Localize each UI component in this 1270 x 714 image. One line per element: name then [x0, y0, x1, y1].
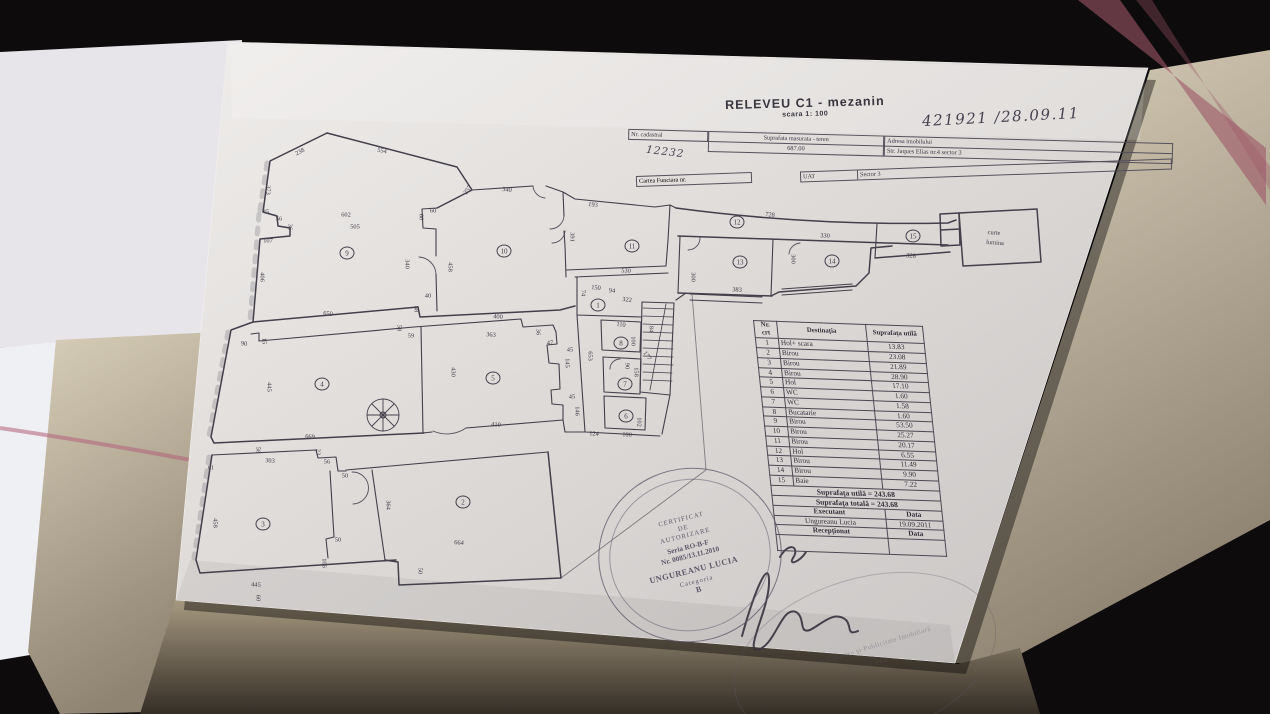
dimension-label: 50 — [417, 568, 424, 574]
dimension-label: 94 — [608, 287, 615, 295]
dimension-label: 653 — [587, 351, 594, 361]
dimension-label: 60 — [430, 208, 436, 215]
dimension-label: 300 — [690, 272, 697, 282]
dimension-label: 59 — [408, 333, 414, 340]
dimension-label: 60 — [255, 595, 262, 601]
room-number-circle: 7 — [618, 378, 633, 391]
dimension-label: 74 — [580, 290, 587, 296]
dimension-label: 45 — [569, 394, 575, 401]
room-number-circle: 10 — [497, 245, 512, 258]
dimension-label: 340 — [404, 259, 411, 269]
room-number-circle: 13 — [733, 256, 748, 269]
dimension-label: 373 — [265, 185, 272, 195]
dimension-label: 90 — [241, 340, 248, 347]
uat-cell: UAT — [800, 169, 858, 182]
dimension-label: 445 — [266, 382, 273, 392]
room-number-circle: 5 — [486, 372, 501, 385]
col-nr-crt: Nr. crt — [754, 321, 778, 339]
dimension-label: 15 — [261, 338, 268, 344]
dimension-label: 102 — [636, 417, 643, 427]
dimension-label: 364 — [385, 500, 392, 510]
room-number-circle: 2 — [456, 496, 471, 509]
dimension-label: 363 — [486, 331, 496, 339]
dimension-label: 23 — [315, 449, 322, 455]
dimension-label: 158 — [633, 367, 640, 377]
dimension-label: 60 — [418, 214, 425, 220]
dimension-label: 84 — [648, 326, 655, 332]
dimension-label: 146 — [574, 406, 581, 416]
dimension-label: 391 — [569, 232, 576, 242]
dimension-label: 58 — [255, 447, 262, 453]
dimension-label: 400 — [493, 313, 503, 321]
room-number-circle: 12 — [730, 216, 745, 229]
rooms-table: Nr. crt Destinaţia Suprafaţa utilă 1Hol+… — [753, 320, 947, 557]
dimension-label: 56 — [324, 459, 330, 466]
dimension-label: 106 — [321, 558, 328, 568]
nr-cadastral-label: Nr. cadastral — [629, 130, 707, 141]
dimension-label: 107 — [263, 238, 273, 245]
dimension-label: 193 — [588, 201, 598, 209]
dimension-label: 61 — [208, 465, 214, 472]
room-number-circle: 6 — [619, 410, 634, 423]
room-number-circle: 11 — [625, 240, 640, 253]
dimension-label: 406 — [259, 272, 266, 282]
dimension-label: 530 — [621, 267, 631, 275]
dimension-label: 36 — [535, 329, 542, 335]
dimension-label: 145 — [564, 358, 571, 368]
photo-of-floorplan-document: 2385543734556361076025054063406060257458… — [0, 0, 1270, 714]
dimension-label: 36 — [287, 224, 294, 230]
dimension-label: 330 — [820, 232, 830, 240]
dimension-label: 410 — [491, 421, 501, 429]
uat-label: UAT — [801, 171, 857, 182]
nr-cadastral-cell: Nr. cadastral — [628, 129, 708, 142]
oval-stamp-office: Oficiul de Cadastru şi Publicitate Imobi… — [780, 622, 945, 680]
dimension-label: 430 — [450, 367, 457, 377]
dimension-label: 100 — [622, 431, 632, 439]
dimension-label: 300 — [790, 254, 797, 264]
dimension-label: 664 — [454, 539, 464, 547]
room-number-circle: 8 — [614, 337, 629, 350]
dimension-label: 150 — [591, 284, 601, 292]
col-suprafata: Suprafaţa utilă — [865, 324, 924, 343]
room-number-circle: 9 — [340, 247, 355, 260]
dimension-label: 458 — [447, 262, 454, 272]
dimension-label: 100 — [630, 336, 637, 346]
room-number-circle: 4 — [315, 378, 330, 391]
dimension-label: 45 — [567, 347, 573, 354]
rooms-table-wrap: Nr. crt Destinaţia Suprafaţa utilă 1Hol+… — [753, 320, 947, 557]
room-number-circle: 1 — [591, 299, 606, 312]
dimension-label: 650 — [323, 310, 333, 318]
dimension-label: 90 — [624, 363, 631, 369]
dimension-label: 58 — [396, 325, 403, 331]
room-number-circle: 15 — [906, 230, 921, 243]
room-number-circle: 14 — [825, 255, 840, 268]
dimension-label: curte — [987, 229, 1000, 237]
dimension-label: 458 — [212, 518, 219, 528]
dimension-label: 728 — [765, 211, 775, 219]
dimension-label: 340 — [502, 186, 512, 194]
dimension-label: 445 — [251, 581, 261, 589]
dimension-label: 50 — [335, 537, 341, 544]
dimension-label: 50 — [342, 473, 348, 480]
rooms-table-body: 1Hol+ scara13.832Birou23.083Birou21.894B… — [755, 338, 939, 491]
dimension-label: 110 — [616, 321, 626, 329]
dimension-label: 554 — [377, 147, 388, 156]
dimension-label: 322 — [622, 296, 632, 304]
dimension-label: 124 — [589, 430, 599, 438]
dimension-label: 45 — [263, 209, 269, 216]
dimension-label: lumina — [986, 239, 1004, 247]
room-number-circle: 3 — [256, 518, 271, 531]
dimension-label: 505 — [350, 224, 360, 231]
dimension-label: 303 — [265, 457, 275, 465]
dimension-label: 40 — [425, 293, 431, 300]
dimension-label: 669 — [305, 433, 315, 441]
dimension-label: 328 — [906, 252, 916, 260]
dimension-label: 602 — [341, 212, 351, 219]
dimension-label: 56 — [276, 216, 282, 223]
dimension-label: 383 — [732, 286, 742, 294]
dimension-label: 47 — [547, 340, 553, 347]
dimension-label: 58 — [413, 306, 420, 312]
stamp-categoria-value: B — [695, 584, 702, 594]
